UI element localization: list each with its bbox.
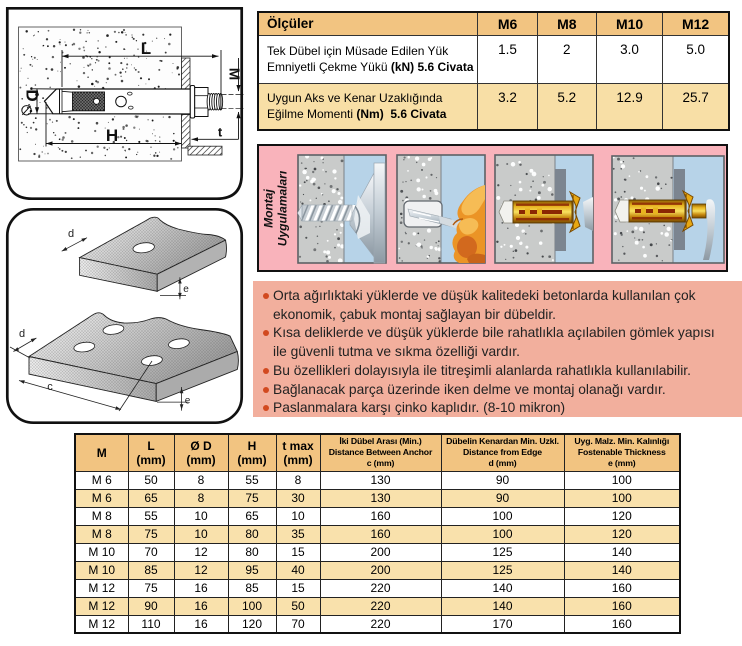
svg-text:e: e bbox=[183, 284, 189, 295]
svg-text:e: e bbox=[185, 396, 191, 407]
svg-text:H: H bbox=[106, 126, 118, 145]
svg-text:D: D bbox=[23, 89, 42, 101]
svg-text:t: t bbox=[218, 125, 223, 140]
svg-text:d: d bbox=[68, 228, 74, 240]
svg-text:M: M bbox=[226, 68, 243, 81]
svg-text:L: L bbox=[141, 39, 151, 58]
svg-text:c: c bbox=[47, 381, 53, 393]
svg-text:d: d bbox=[19, 328, 25, 340]
